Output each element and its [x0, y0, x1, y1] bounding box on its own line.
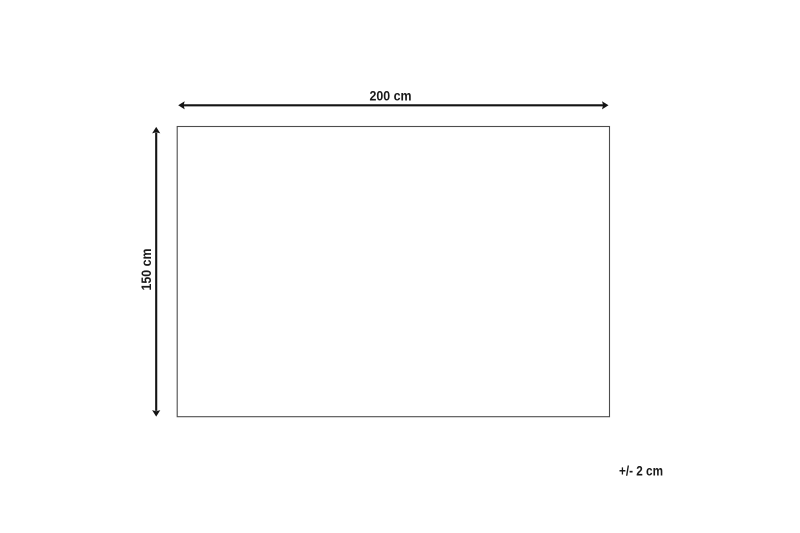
svg-text:150 cm: 150 cm: [139, 249, 155, 291]
svg-text:200 cm: 200 cm: [370, 89, 412, 105]
svg-text:+/- 2 cm: +/- 2 cm: [619, 464, 663, 480]
